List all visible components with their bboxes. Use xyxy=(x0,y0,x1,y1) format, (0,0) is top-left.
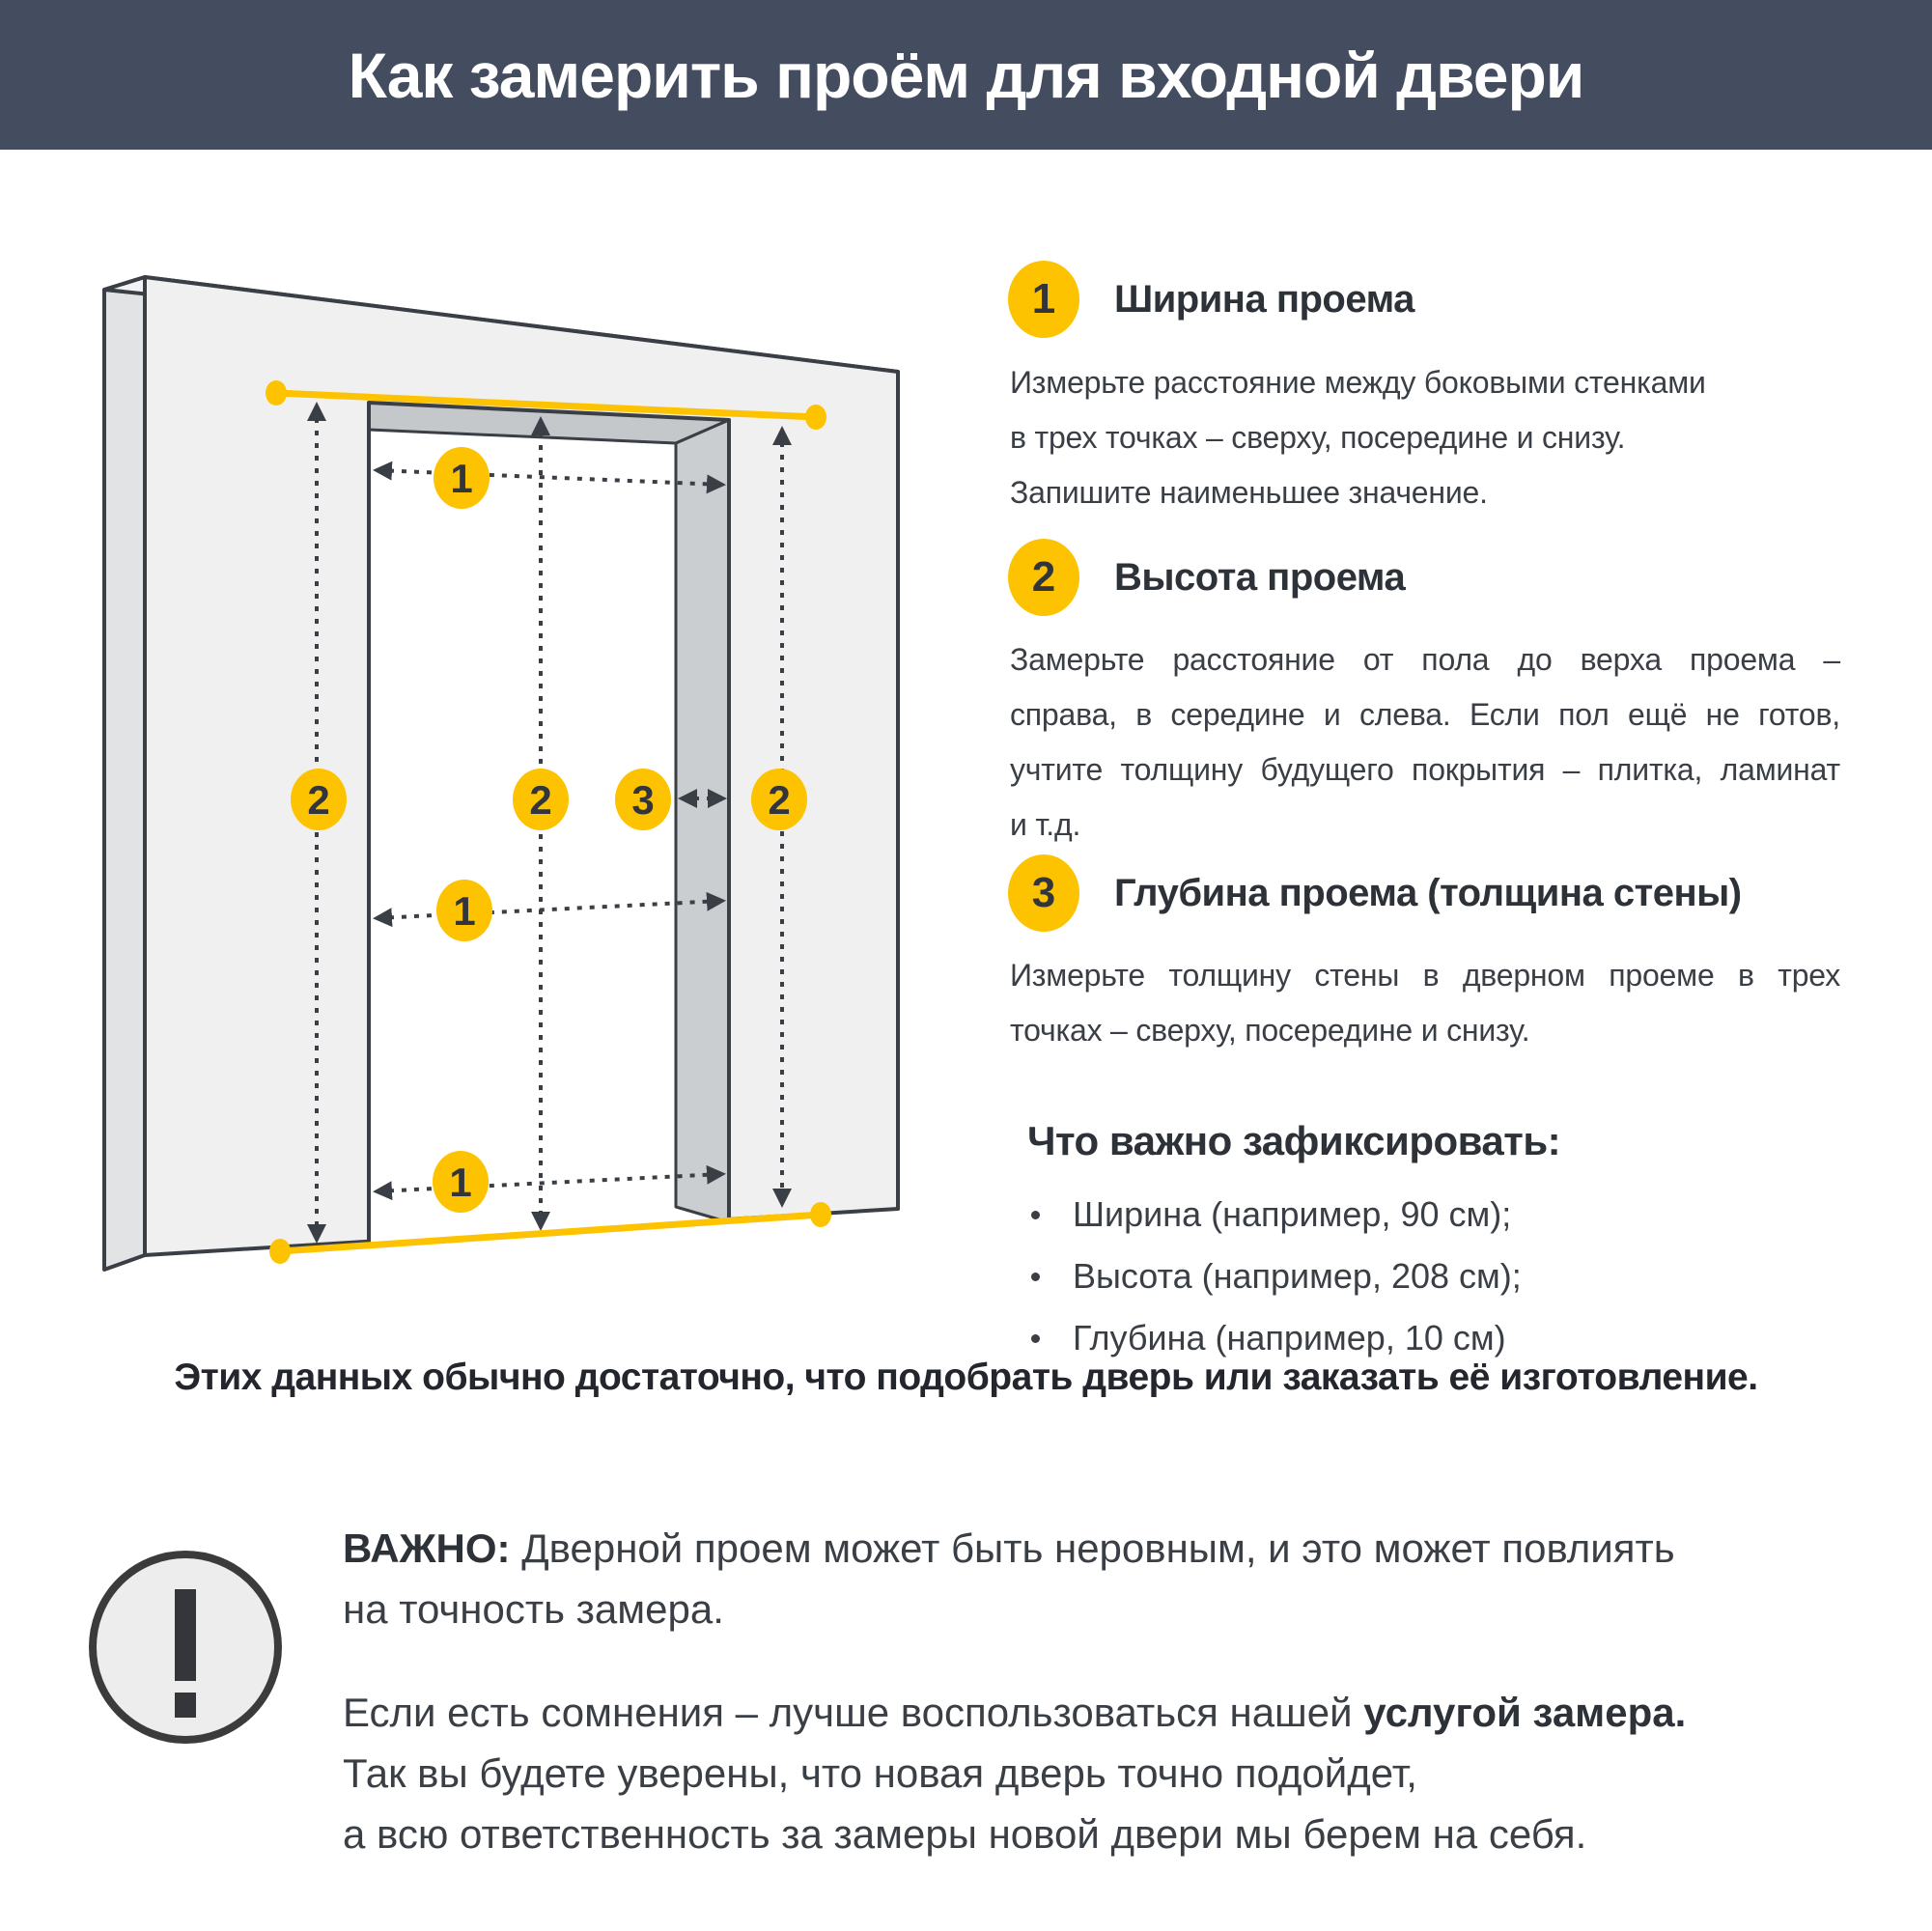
width-marker-top-label: 1 xyxy=(450,456,472,501)
bottom-tape-dot-right xyxy=(810,1202,831,1227)
wall-side-face xyxy=(104,277,145,1270)
step-3-badge: 3 xyxy=(1008,854,1079,932)
step-2-line-1: Замерьте расстояние от пола до верха про… xyxy=(1010,632,1840,687)
important-line-2: на точность замера. xyxy=(343,1586,724,1632)
step-2-line-2: справа, в середине и слева. Если пол ещё… xyxy=(1010,687,1840,742)
step-2-line-3: учтите толщину будущего покрытия – плитк… xyxy=(1010,742,1840,798)
step-2-text: Замерьте расстояние от пола до верха про… xyxy=(1010,632,1840,853)
important-p2-line-1-bold: услугой замера. xyxy=(1363,1690,1686,1735)
height-marker-middle-label: 2 xyxy=(529,777,551,823)
bullet-dot xyxy=(1031,1273,1040,1281)
checklist-item-1-text: Ширина (например, 90 см); xyxy=(1073,1184,1511,1245)
summary-line: Этих данных обычно достаточно, что подоб… xyxy=(0,1357,1932,1399)
important-p2-line-1: Если есть сомнения – лучше воспользовать… xyxy=(343,1690,1363,1735)
important-paragraph-2: Если есть сомнения – лучше воспользовать… xyxy=(343,1682,1686,1864)
exclamation-dot xyxy=(175,1693,196,1718)
step-3-title: Глубина проема (толщина стены) xyxy=(1114,872,1742,915)
important-p2-line-2: Так вы будете уверены, что новая дверь т… xyxy=(343,1750,1417,1796)
checklist-item-2-text: Высота (например, 208 см); xyxy=(1073,1245,1522,1307)
step-3-text: Измерьте толщину стены в дверном проеме … xyxy=(1010,948,1840,1058)
step-1-badge: 1 xyxy=(1008,261,1079,338)
top-tape-dot-right xyxy=(805,405,826,430)
opening-right-reveal xyxy=(676,420,729,1222)
step-1-text: Измерьте расстояние между боковыми стенк… xyxy=(1010,355,1706,520)
bullet-dot xyxy=(1031,1334,1040,1343)
exclamation-bar xyxy=(175,1589,196,1681)
checklist-title: Что важно зафиксировать: xyxy=(1027,1118,1560,1164)
checklist-item: Высота (например, 208 см); xyxy=(1031,1245,1522,1307)
step-2-header: 2 Высота проема xyxy=(1008,539,1405,616)
height-marker-left-label: 2 xyxy=(307,777,329,823)
width-marker-bottom-label: 1 xyxy=(449,1160,471,1205)
bullet-dot xyxy=(1031,1211,1040,1219)
important-paragraph-1: ВАЖНО: Дверной проем может быть неровным… xyxy=(343,1518,1675,1639)
step-3-number: 3 xyxy=(1032,869,1055,917)
height-marker-right-label: 2 xyxy=(768,777,790,823)
step-1-header: 1 Ширина проема xyxy=(1008,261,1414,338)
step-2-line-4: и т.д. xyxy=(1010,798,1840,853)
step-1-title: Ширина проема xyxy=(1114,278,1414,322)
bottom-tape-dot-left xyxy=(269,1239,291,1264)
step-1-line-1: Измерьте расстояние между боковыми стенк… xyxy=(1010,355,1706,410)
top-tape-dot-left xyxy=(266,380,287,406)
step-2-number: 2 xyxy=(1032,553,1055,602)
step-1-line-2: в трех точках – сверху, посередине и сни… xyxy=(1010,410,1706,465)
important-line-1: Дверной проем может быть неровным, и это… xyxy=(511,1525,1675,1571)
exclamation-icon xyxy=(89,1551,282,1744)
width-marker-middle-label: 1 xyxy=(453,888,475,934)
checklist-item: Ширина (например, 90 см); xyxy=(1031,1184,1522,1245)
step-2-title: Высота проема xyxy=(1114,556,1405,600)
checklist: Ширина (например, 90 см); Высота (наприм… xyxy=(1031,1184,1522,1369)
step-3-line-1: Измерьте толщину стены в дверном проеме … xyxy=(1010,948,1840,1003)
step-3-line-2: точках – сверху, посередине и снизу. xyxy=(1010,1003,1840,1058)
important-p2-line-3: а всю ответственность за замеры новой дв… xyxy=(343,1811,1586,1857)
step-3-header: 3 Глубина проема (толщина стены) xyxy=(1008,854,1742,932)
step-1-number: 1 xyxy=(1032,275,1055,323)
depth-marker-label: 3 xyxy=(631,777,654,823)
step-2-badge: 2 xyxy=(1008,539,1079,616)
important-label: ВАЖНО: xyxy=(343,1525,511,1571)
step-1-line-3: Запишите наименьшее значение. xyxy=(1010,465,1706,520)
infographic-page: Как замерить проём для входной двери xyxy=(0,0,1932,1931)
